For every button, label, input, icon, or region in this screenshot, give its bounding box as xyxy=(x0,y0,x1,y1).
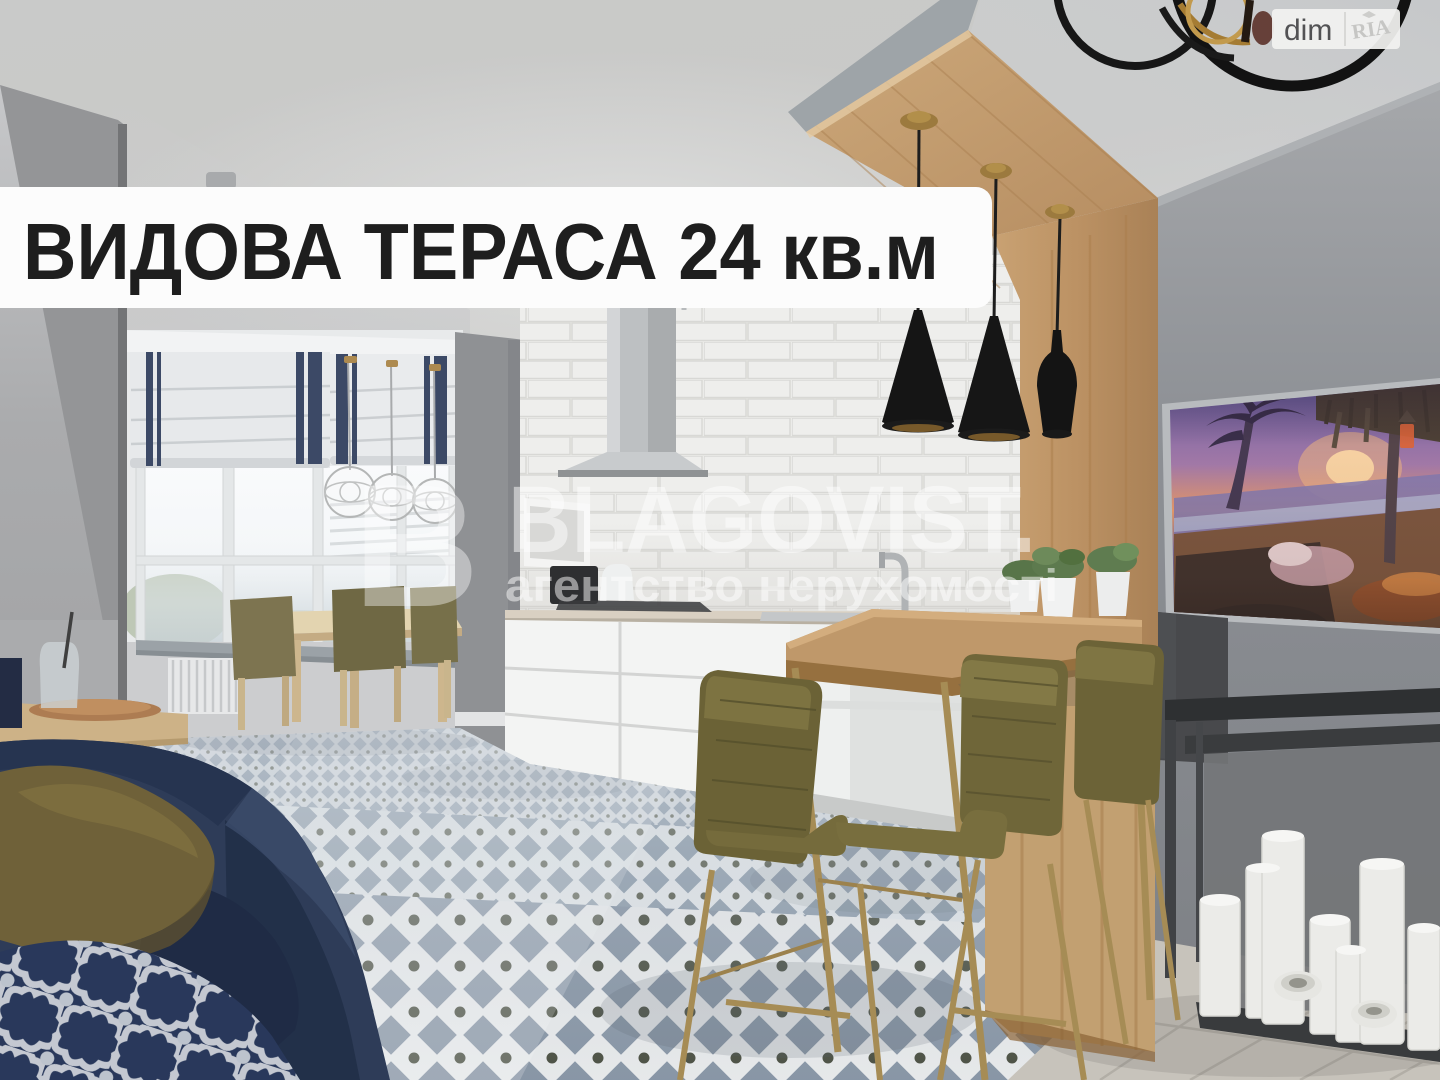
svg-text:B: B xyxy=(353,449,479,644)
svg-text:ВИДОВА ТЕРАСА 24 кв.м: ВИДОВА ТЕРАСА 24 кв.м xyxy=(23,207,939,296)
svg-text:dim: dim xyxy=(1284,14,1332,47)
svg-text:BLAGOVIST.: BLAGOVIST. xyxy=(508,467,1036,573)
svg-text:агентство нерухомості: агентство нерухомості xyxy=(505,560,1058,611)
